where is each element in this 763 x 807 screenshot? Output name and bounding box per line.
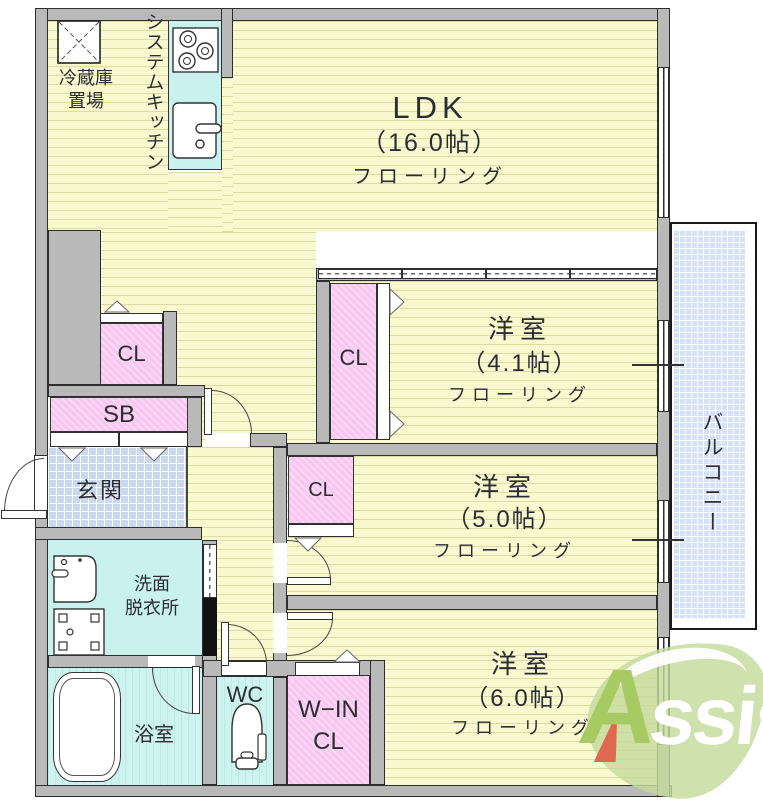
entrance-door-leaf bbox=[1, 510, 47, 519]
door-opening bbox=[205, 433, 250, 447]
shoe-box-door bbox=[50, 432, 119, 447]
wall bbox=[35, 8, 670, 21]
wall bbox=[186, 397, 202, 447]
entrance-label: 玄関 bbox=[60, 476, 140, 502]
wall bbox=[35, 8, 48, 797]
washbasin-icon bbox=[50, 548, 100, 606]
wall bbox=[163, 311, 177, 385]
fridge-label: 冷蔵庫 bbox=[50, 66, 122, 88]
walkin-closet-label: W−IN bbox=[287, 695, 370, 725]
closet-door bbox=[100, 313, 163, 323]
ldk-floor bbox=[168, 172, 222, 232]
closet-door bbox=[288, 524, 354, 537]
kitchen-label: システムキッチン bbox=[138, 12, 168, 172]
bedroom-50-size: （5.0帖） bbox=[405, 503, 605, 529]
sliding-partition bbox=[318, 269, 402, 279]
sliding-partition bbox=[570, 269, 657, 279]
window bbox=[658, 320, 669, 412]
door-direction-marker bbox=[58, 447, 86, 462]
door-direction-marker bbox=[140, 447, 168, 462]
washer-icon bbox=[53, 608, 105, 656]
hallway-floor bbox=[188, 447, 273, 527]
wall bbox=[250, 433, 287, 447]
wall bbox=[48, 385, 205, 397]
window bbox=[658, 67, 669, 218]
hallway-floor bbox=[202, 527, 273, 540]
wall bbox=[287, 443, 657, 456]
wall bbox=[221, 8, 233, 78]
bedroom-41-size: （4.1帖） bbox=[420, 347, 620, 373]
wall bbox=[370, 660, 385, 785]
sliding-partition bbox=[402, 269, 486, 279]
door-direction-marker bbox=[389, 288, 405, 316]
ldk-name: LDK bbox=[330, 92, 530, 124]
assist-logo-text: ssist bbox=[646, 676, 763, 758]
ldk-floor bbox=[222, 78, 233, 232]
wall bbox=[48, 230, 101, 385]
door-direction-marker bbox=[389, 410, 405, 438]
stove-icon bbox=[172, 27, 219, 73]
wall bbox=[287, 595, 657, 610]
walkin-closet-label: CL bbox=[287, 727, 370, 757]
closet-50-label: CL bbox=[288, 462, 354, 518]
sliding-partition bbox=[486, 269, 570, 279]
bedroom-50-flooring: フローリング bbox=[405, 539, 605, 561]
door-leaf bbox=[287, 577, 331, 585]
washroom-label: 脱衣所 bbox=[112, 596, 192, 618]
door-opening bbox=[148, 656, 195, 667]
balcony-label: バルコニー bbox=[695, 368, 727, 578]
door-direction-marker bbox=[294, 537, 322, 552]
fridge-space-icon bbox=[57, 20, 101, 64]
closet-door bbox=[295, 662, 360, 676]
ldk-size: （16.0帖） bbox=[330, 127, 530, 155]
sliding-door bbox=[203, 544, 217, 598]
wall-column bbox=[203, 598, 217, 656]
door-leaf bbox=[221, 622, 229, 666]
toilet-icon bbox=[227, 700, 267, 774]
bathroom-label: 浴室 bbox=[124, 720, 184, 744]
wall bbox=[35, 527, 202, 540]
window bbox=[658, 500, 669, 583]
shoe-box-door bbox=[119, 432, 188, 447]
wall bbox=[35, 785, 672, 797]
door-leaf bbox=[204, 388, 212, 435]
door-opening bbox=[273, 613, 287, 653]
bedroom-41-flooring: フローリング bbox=[420, 383, 620, 405]
floorplan-canvas: { "rooms": { "ldk": {"name": "LDK", "siz… bbox=[0, 0, 763, 800]
fridge-label: 置場 bbox=[50, 89, 122, 111]
wall bbox=[316, 281, 330, 443]
door-leaf bbox=[192, 666, 200, 714]
washroom-label: 洗面 bbox=[112, 572, 192, 594]
wall bbox=[273, 677, 287, 785]
toilet-label: WC bbox=[219, 683, 271, 707]
door-opening bbox=[273, 543, 287, 583]
window-center-tick bbox=[632, 364, 684, 366]
door-direction-marker bbox=[104, 300, 130, 313]
door-swing-arc bbox=[4, 458, 44, 512]
door-direction-marker bbox=[333, 649, 361, 663]
ldk-flooring: フローリング bbox=[330, 162, 530, 186]
shoe-box-label: SB bbox=[50, 397, 188, 432]
bathtub-icon bbox=[53, 672, 121, 782]
closet-ldk-label: CL bbox=[100, 330, 163, 378]
window-center-tick bbox=[632, 539, 684, 541]
bedroom-50-name: 洋室 bbox=[405, 471, 605, 499]
door-leaf bbox=[287, 612, 333, 620]
bedroom-41-name: 洋室 bbox=[420, 313, 620, 341]
sink-icon bbox=[172, 102, 222, 160]
closet-41-label: CL bbox=[330, 335, 377, 381]
